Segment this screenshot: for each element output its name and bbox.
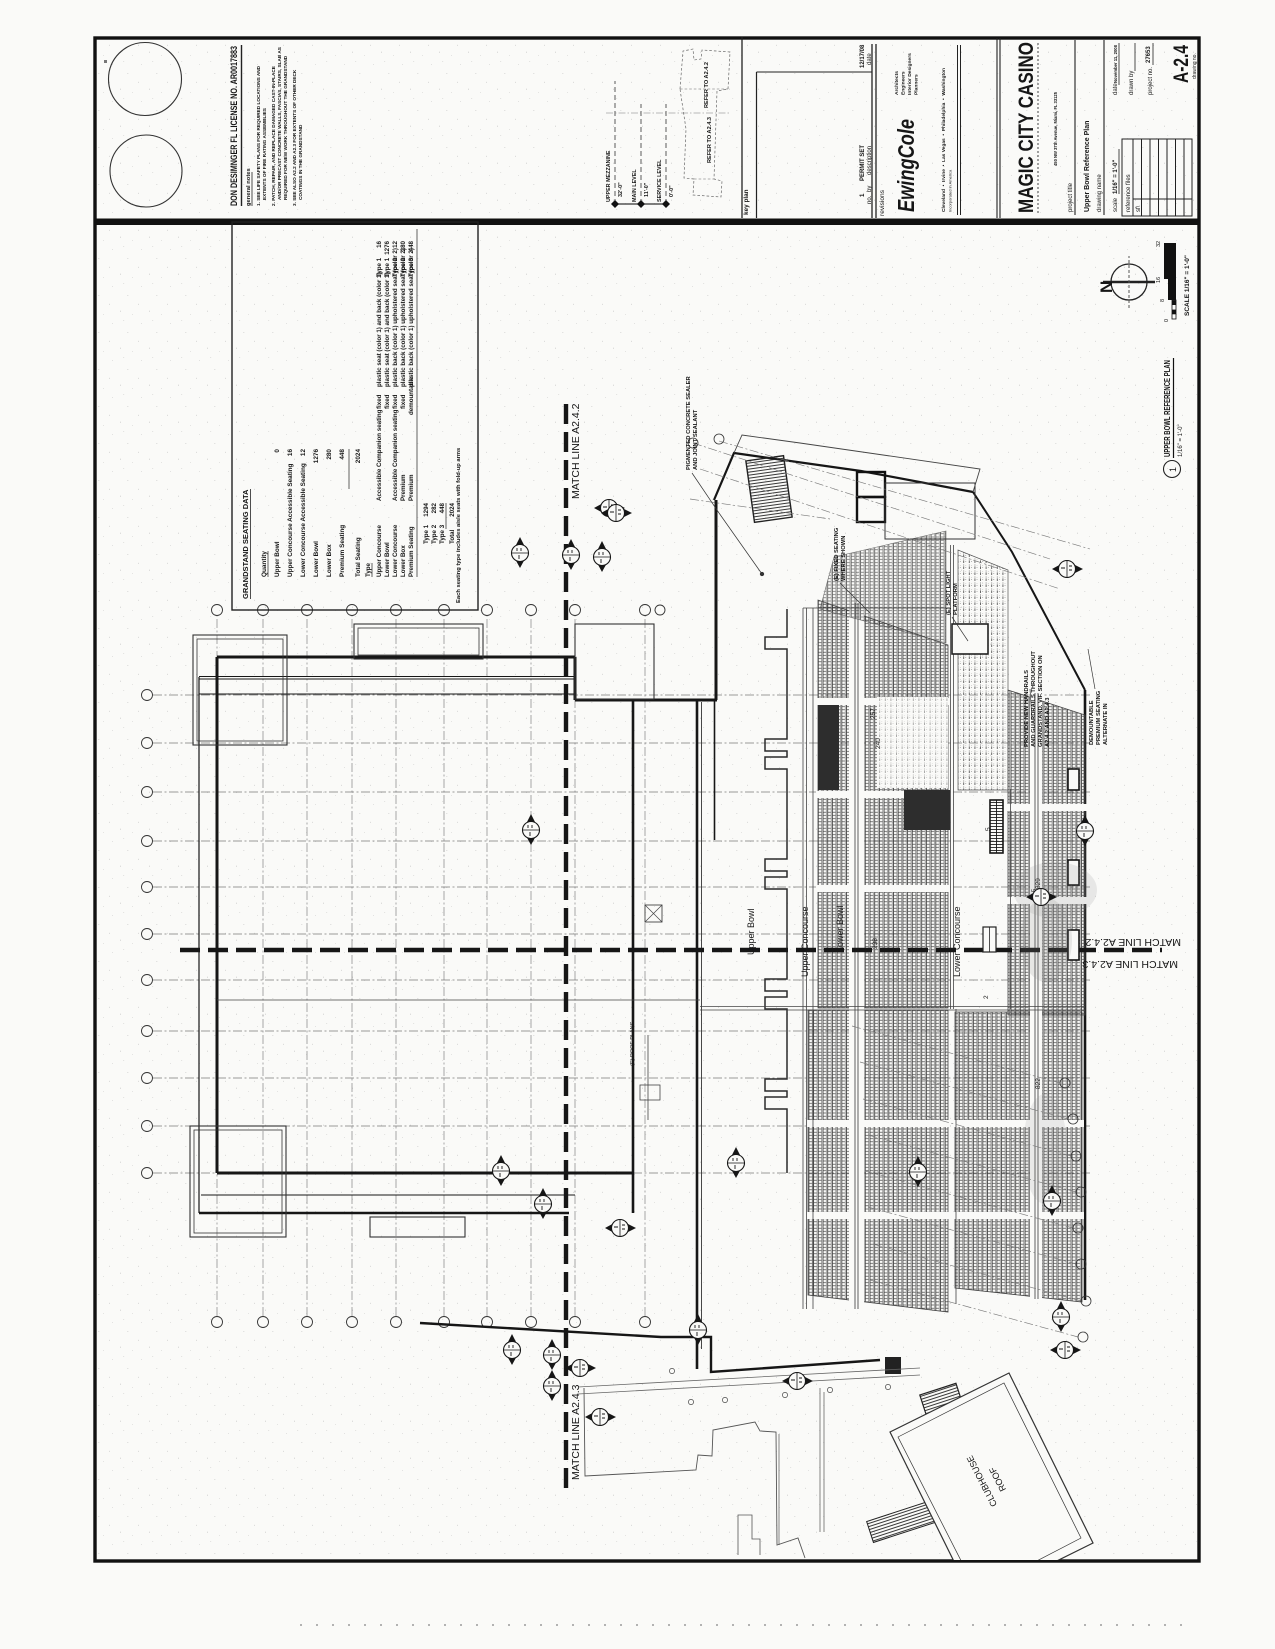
svg-text:EXTENTS OF FIRE RATING ASSEMBL: EXTENTS OF FIRE RATING ASSEMBLIES <box>262 108 267 200</box>
svg-text:8: 8 <box>1160 299 1166 302</box>
svg-text:Accessible Companion seating: Accessible Companion seating <box>392 409 399 501</box>
svg-text:0: 0 <box>274 449 281 453</box>
svg-text:REFER TO A2.4.2: REFER TO A2.4.2 <box>704 62 710 108</box>
svg-text:238: 238 <box>872 938 879 949</box>
svg-text:Lower Box: Lower Box <box>326 544 333 577</box>
svg-text:1: 1 <box>1168 467 1178 472</box>
svg-text:revisions: revisions <box>879 189 886 216</box>
svg-text:Lower Bowl: Lower Bowl <box>313 541 320 577</box>
svg-text:fixed: fixed <box>400 394 407 409</box>
svg-text:November 11, 2008: November 11, 2008 <box>1113 45 1118 83</box>
svg-text:Type 2: Type 2 <box>400 257 407 277</box>
svg-text:Lower Concourse: Lower Concourse <box>392 524 399 577</box>
svg-text:Cleveland • Irvine • Las V: Cleveland • Irvine • Las Vegas • Philade… <box>941 68 947 212</box>
svg-text:Engineers: Engineers <box>901 71 907 95</box>
svg-text:drawing no.: drawing no. <box>1192 53 1198 79</box>
svg-text:Type: Type <box>365 562 372 577</box>
svg-text:448: 448 <box>408 240 415 251</box>
svg-text:plastic seat (color 1) and bac: plastic seat (color 1) and back (color 1… <box>376 272 383 387</box>
svg-text:(E) FIXED SEATING: (E) FIXED SEATING <box>834 527 840 581</box>
svg-text:ALTERNATE IN: ALTERNATE IN <box>1103 703 1109 745</box>
svg-text:Total: Total <box>449 529 456 544</box>
svg-text:GRANDSTAND SEATING DATA: GRANDSTAND SEATING DATA <box>241 489 250 599</box>
svg-text:COATINGS IN THE GRANDSTAND: COATINGS IN THE GRANDSTAND <box>298 124 303 200</box>
svg-text:EwingCole: EwingCole <box>893 119 919 212</box>
svg-text:SERVICE LEVEL: SERVICE LEVEL <box>657 159 663 202</box>
svg-text:GRANDSTAND. VIF. SECTION ON: GRANDSTAND. VIF. SECTION ON <box>1038 655 1044 747</box>
svg-text:16: 16 <box>287 449 294 457</box>
svg-text:reference files: reference files <box>1126 174 1132 212</box>
svg-text:Upper Bowl: Upper Bowl <box>274 541 281 577</box>
svg-text:Total Seating: Total Seating <box>355 537 362 577</box>
svg-text:2. PATCH, REPAIR, AND REPLACE: 2. PATCH, REPAIR, AND REPLACE DAMAGED CA… <box>271 66 276 206</box>
svg-text:date: date <box>1113 83 1119 95</box>
svg-text:date: date <box>867 53 873 65</box>
svg-text:N: N <box>1097 281 1116 293</box>
svg-text:448: 448 <box>439 502 446 513</box>
svg-text:project title: project title <box>1068 182 1074 212</box>
svg-text:PROVIDE NEW HANDRAILS: PROVIDE NEW HANDRAILS <box>1024 670 1030 747</box>
svg-text:fixed: fixed <box>392 394 399 409</box>
svg-text:240: 240 <box>875 738 882 749</box>
svg-text:Upper Bowl Reference Plan: Upper Bowl Reference Plan <box>1084 121 1091 212</box>
svg-text:Premium Seating: Premium Seating <box>339 525 346 577</box>
svg-text:DON DESIMNGER FL LICENSE NO. A: DON DESIMNGER FL LICENSE NO. AR0017883 <box>229 46 240 206</box>
svg-text:280: 280 <box>326 449 333 460</box>
svg-text:1276: 1276 <box>313 449 320 464</box>
svg-text:16: 16 <box>1156 277 1162 283</box>
svg-text:Lower Box: Lower Box <box>400 545 407 577</box>
svg-text:(E) SPOT LIGHT: (E) SPOT LIGHT <box>946 570 952 615</box>
svg-text:Quantity: Quantity <box>261 551 268 577</box>
svg-text:Lower Bowl: Lower Bowl <box>384 542 391 577</box>
svg-text:MATCH LINE A2.4.2: MATCH LINE A2.4.2 <box>570 403 582 499</box>
svg-text:Architects: Architects <box>894 71 900 95</box>
svg-text:DEMOUNTABLE: DEMOUNTABLE <box>1089 700 1095 745</box>
svg-text:448: 448 <box>339 449 346 460</box>
svg-text:1294: 1294 <box>423 502 430 516</box>
svg-text:257: 257 <box>870 708 877 719</box>
svg-text:2024: 2024 <box>449 502 456 516</box>
svg-text:Planners: Planners <box>914 74 920 95</box>
svg-text:12: 12 <box>392 240 399 247</box>
svg-text:450 NW 37th Avenue, Miami, FL: 450 NW 37th Avenue, Miami, FL 33125 <box>1053 92 1059 166</box>
svg-text:32: 32 <box>1156 241 1162 247</box>
svg-text:282: 282 <box>431 502 438 513</box>
svg-text:AND GUARDRAILS THROUGHOUT: AND GUARDRAILS THROUGHOUT <box>1031 651 1037 747</box>
svg-text:REQUIRED FOR NEW WORK THROUGHO: REQUIRED FOR NEW WORK THROUGHOUT THE GRA… <box>283 55 288 200</box>
svg-text:Premium: Premium <box>400 474 407 501</box>
svg-text:Upper Concourse: Upper Concourse <box>800 906 810 977</box>
svg-text:0'-0": 0'-0" <box>669 185 675 197</box>
svg-text:Type 3: Type 3 <box>408 257 415 277</box>
svg-text:Accessible Companion seating: Accessible Companion seating <box>376 409 383 501</box>
svg-text:MATCH LINE A2.4.3: MATCH LINE A2.4.3 <box>570 1384 582 1480</box>
svg-text:280: 280 <box>400 240 407 251</box>
svg-text:32'-0": 32'-0" <box>618 182 624 197</box>
svg-text:scale: scale <box>1113 197 1119 212</box>
svg-text:16: 16 <box>376 240 383 247</box>
svg-text:Type 1: Type 1 <box>376 257 383 277</box>
svg-text:Lower Concourse Accessible Sea: Lower Concourse Accessible Seating <box>300 463 307 577</box>
svg-text:REFER TO A2.4.3: REFER TO A2.4.3 <box>707 117 713 163</box>
svg-text:12: 12 <box>300 449 307 457</box>
svg-text:Upper Concourse: Upper Concourse <box>376 525 383 577</box>
svg-text:2024: 2024 <box>355 449 362 464</box>
svg-text:fixed: fixed <box>376 394 383 409</box>
svg-text:1276: 1276 <box>384 240 391 254</box>
svg-text:general notes: general notes <box>246 168 252 206</box>
svg-text:UPPER BOWL REFERENCE PLAN: UPPER BOWL REFERENCE PLAN <box>1162 360 1172 457</box>
svg-text:description: description <box>867 146 873 175</box>
svg-text:2: 2 <box>983 995 990 999</box>
svg-text:11'-0": 11'-0" <box>644 182 650 197</box>
svg-text:Each seating type includes ais: Each seating type includes aisle seats w… <box>456 448 462 603</box>
svg-text:12/17/08: 12/17/08 <box>860 44 866 68</box>
svg-text:(E) ROOF PLANS: (E) ROOF PLANS <box>630 1021 636 1066</box>
svg-text:0: 0 <box>1164 319 1170 322</box>
svg-text:PERMIT SET: PERMIT SET <box>860 145 866 181</box>
svg-text:Lower Bowl: Lower Bowl <box>835 905 845 952</box>
svg-text:1/16" = 1'-0": 1/16" = 1'-0" <box>1113 160 1119 194</box>
svg-text:Incorporated in America: Incorporated in America <box>948 169 953 212</box>
svg-text:Premium Seating: Premium Seating <box>408 526 415 577</box>
svg-text:key plan: key plan <box>743 189 750 215</box>
svg-text:AND/OR PRECAST CONCRETE WALLS,: AND/OR PRECAST CONCRETE WALLS, FASCIAS, … <box>277 47 282 200</box>
svg-text:1/16" = 1'-0": 1/16" = 1'-0" <box>1178 424 1184 457</box>
svg-text:AND JOINT SEALANT: AND JOINT SEALANT <box>693 409 699 470</box>
svg-text:Upper Concourse Accessible Sea: Upper Concourse Accessible Seating <box>287 463 294 577</box>
svg-text:Interior Designers: Interior Designers <box>907 53 913 95</box>
svg-text:Upper Bowl: Upper Bowl <box>746 908 756 955</box>
svg-text:PLATFORM: PLATFORM <box>953 583 959 615</box>
svg-text:Type 2: Type 2 <box>392 257 399 277</box>
svg-text:drawing name: drawing name <box>1097 174 1103 212</box>
svg-text:project no.: project no. <box>1148 67 1154 95</box>
svg-text:A-2.4: A-2.4 <box>1170 45 1193 83</box>
svg-text:1. SEE LIFE SAFETY PLANS FOR R: 1. SEE LIFE SAFETY PLANS FOR REQUIRED LO… <box>256 65 261 206</box>
svg-text:822: 822 <box>1035 1078 1042 1089</box>
svg-text:UPPER MEZZANINE: UPPER MEZZANINE <box>606 150 612 202</box>
svg-text:plastic seat (color 1) and bac: plastic seat (color 1) and back (color 1… <box>384 272 391 387</box>
svg-text:Type 1: Type 1 <box>423 524 430 544</box>
svg-text:WHERE SHOWN: WHERE SHOWN <box>841 536 847 581</box>
svg-text:PREMIUM SEATING: PREMIUM SEATING <box>1096 690 1102 745</box>
svg-text:A2.4.2 AND A2.4.3: A2.4.2 AND A2.4.3 <box>1045 697 1051 747</box>
svg-text:SCALE 1/16" = 1'-0": SCALE 1/16" = 1'-0" <box>1184 255 1191 316</box>
svg-text:27653: 27653 <box>1146 46 1152 63</box>
svg-text:Lower Concourse: Lower Concourse <box>952 906 962 977</box>
svg-text:Type 3: Type 3 <box>439 524 446 544</box>
svg-text:MATCH LINE A2.4.3: MATCH LINE A2.4.3 <box>1082 958 1178 970</box>
svg-text:no.: no. <box>867 195 873 204</box>
svg-text:MATCH LINE A2.4.2: MATCH LINE A2.4.2 <box>1085 936 1181 948</box>
svg-text:by: by <box>867 186 873 192</box>
svg-text:3. SEE ALSO A2.2 AND A2.3 FOR: 3. SEE ALSO A2.2 AND A2.3 FOR EXTENTS OF… <box>292 69 297 206</box>
svg-text:MAIN LEVEL: MAIN LEVEL <box>632 169 638 202</box>
svg-text:PIGMENTED CONCRETE SEALER: PIGMENTED CONCRETE SEALER <box>686 375 692 470</box>
svg-text:drawn by: drawn by <box>1129 71 1135 95</box>
svg-text:MAGIC CITY CASINO: MAGIC CITY CASINO <box>1015 42 1038 213</box>
svg-text:Premium: Premium <box>408 474 415 501</box>
svg-text:fixed: fixed <box>384 394 391 409</box>
svg-text:Type 1: Type 1 <box>384 257 391 277</box>
svg-text:Type 2: Type 2 <box>431 524 438 544</box>
